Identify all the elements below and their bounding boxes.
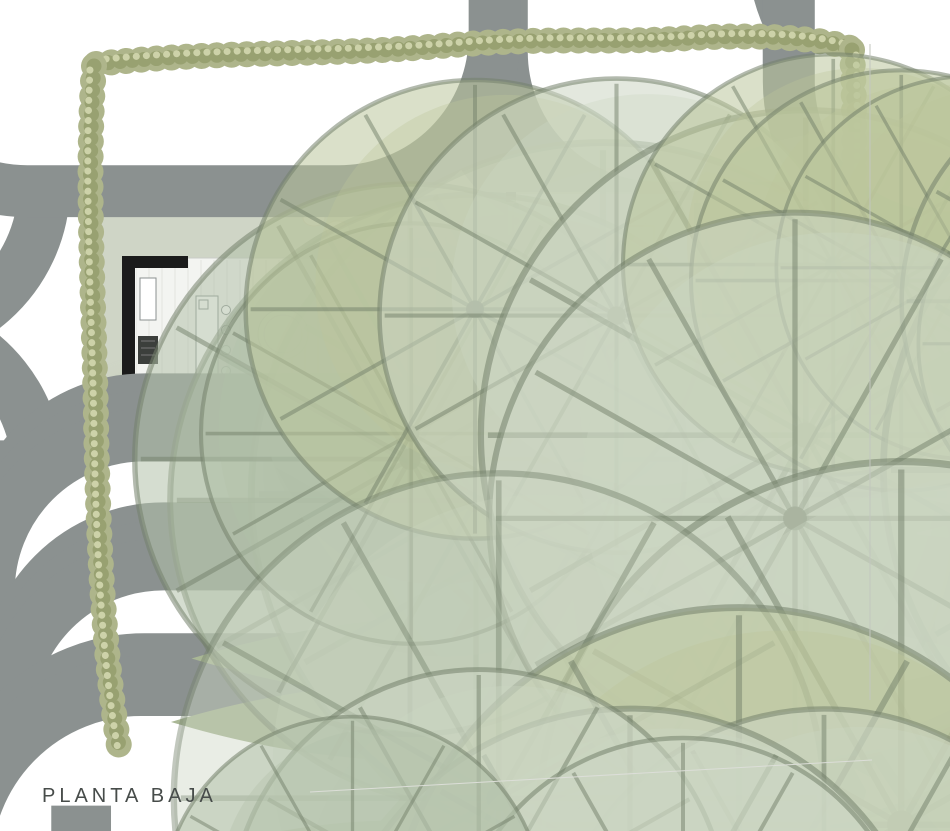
floor-plan-canvas: PLANTA BAJA [0, 0, 950, 831]
plan-title: PLANTA BAJA [42, 785, 217, 807]
floor-plan-page: PLANTA BAJA [0, 0, 950, 831]
